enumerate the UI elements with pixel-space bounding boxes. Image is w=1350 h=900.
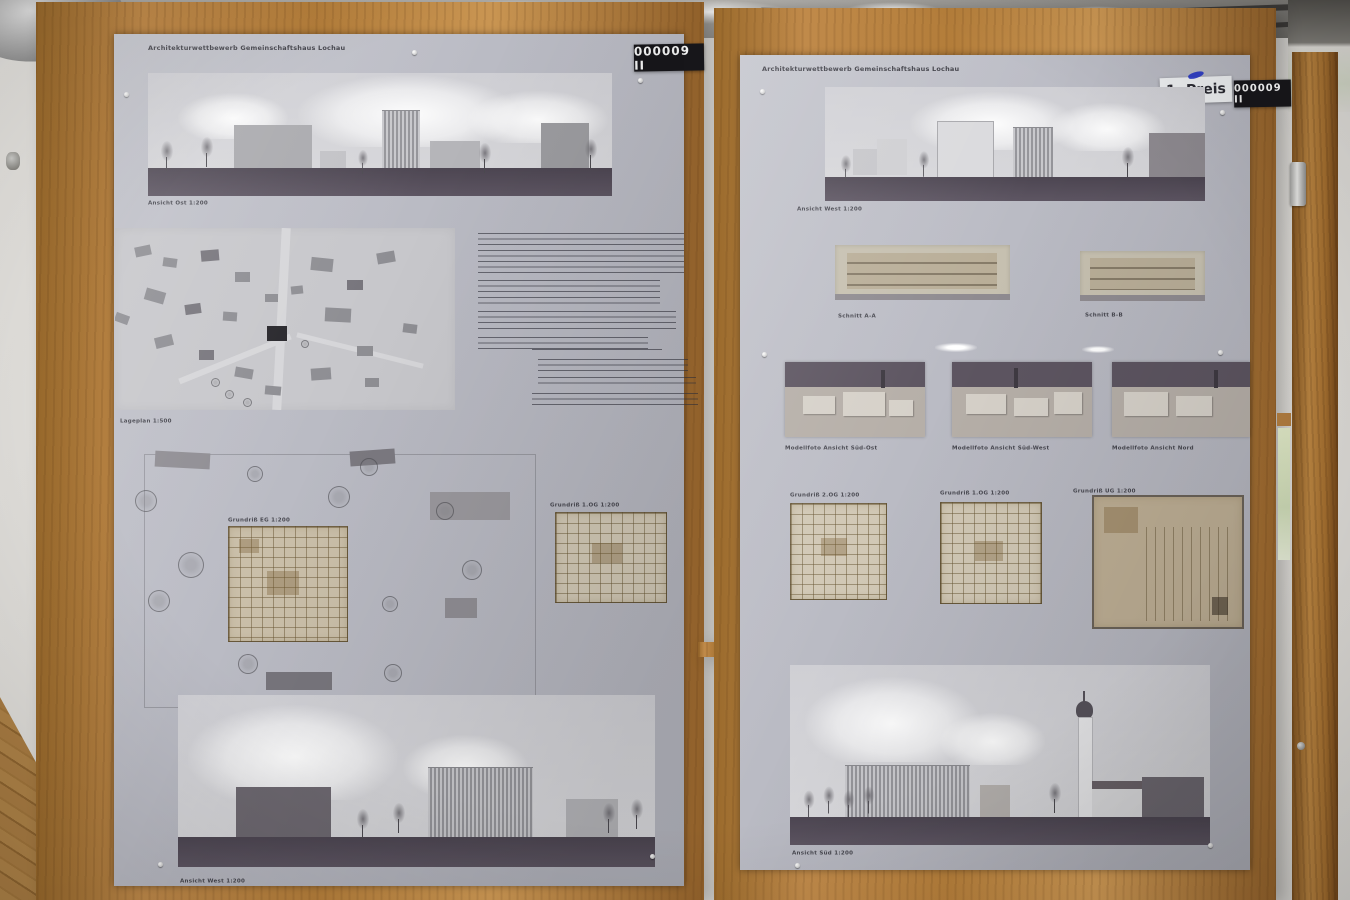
push-pin (762, 352, 767, 357)
site-building (357, 346, 373, 356)
section-drawing-a (835, 245, 1010, 300)
ground-band (825, 177, 1205, 201)
caption-section-a: Schnitt A-A (838, 313, 876, 319)
caption-section-b: Schnitt B-B (1085, 312, 1123, 318)
tree-icon (1121, 147, 1135, 177)
board-title: Architekturwettbewerb Gemeinschaftshaus … (148, 44, 345, 52)
right-competition-board: Architekturwettbewerb Gemeinschaftshaus … (740, 55, 1250, 870)
site-building (115, 312, 130, 325)
push-pin (760, 89, 765, 94)
tree-icon (602, 803, 616, 833)
building-silhouette-striped (428, 767, 533, 838)
model-building (1014, 398, 1048, 416)
model-building (889, 400, 913, 416)
tree-icon (178, 552, 204, 578)
model-photo-1 (785, 362, 925, 437)
window-sill (1277, 413, 1291, 426)
section-floors (1090, 258, 1195, 290)
floor-plan-2og (790, 503, 887, 600)
model-church-spire (881, 370, 885, 388)
tree-icon (148, 590, 170, 612)
site-building (223, 312, 238, 322)
site-building (184, 303, 201, 315)
site-building (291, 285, 304, 294)
tree-icon (328, 486, 350, 508)
caption-floor-plan-ug: Grundriß UG 1:200 (1073, 488, 1136, 494)
tree-icon (462, 560, 482, 580)
tree-icon (225, 390, 234, 399)
push-pin (650, 854, 655, 859)
cloud (940, 713, 1045, 765)
plan-core (267, 571, 299, 595)
tree-icon (584, 139, 598, 169)
model-building (966, 394, 1006, 414)
caption-floor-plan-2og: Grundriß 2.OG 1:200 (790, 492, 859, 498)
elevation-drawing-top (825, 87, 1205, 201)
site-building (265, 294, 278, 302)
church-tower (1078, 717, 1093, 819)
push-pin (1220, 110, 1225, 115)
tree-icon (382, 596, 398, 612)
model-building (1124, 392, 1168, 416)
tree-icon (630, 799, 644, 829)
floor-plan-ground (228, 526, 348, 642)
push-pin (638, 78, 643, 83)
tree-icon (211, 378, 220, 387)
white-scribble (935, 343, 977, 352)
floor-plan-upper (555, 512, 667, 603)
revision-note-text (532, 393, 698, 405)
model-photo-2 (952, 362, 1092, 437)
building-silhouette (236, 787, 331, 837)
building-silhouette (980, 785, 1010, 817)
building-silhouette (877, 139, 907, 175)
church-cross (1083, 691, 1085, 703)
entry-number-badge: 000009 II (1234, 80, 1291, 108)
section-floors (847, 253, 997, 289)
left-competition-board: Architekturwettbewerb Gemeinschaftshaus … (114, 34, 684, 886)
caption-top-elevation: Ansicht Ost 1:200 (148, 200, 208, 206)
site-building (403, 323, 418, 334)
context-slab (266, 672, 332, 690)
section-base (835, 294, 1010, 300)
entry-number-badge: 000009 II (634, 43, 704, 71)
site-building (235, 272, 250, 282)
building-silhouette (937, 121, 994, 179)
site-building (144, 287, 167, 304)
revision-note-text (538, 359, 688, 373)
section-base (1080, 295, 1205, 301)
caption-bottom-elevation: Ansicht West 1:200 (180, 878, 245, 884)
ground-band (790, 817, 1210, 845)
site-building (365, 378, 379, 387)
caption-floor-plan-ground: Grundriß EG 1:200 (228, 517, 290, 523)
site-plan-drawing (115, 228, 455, 410)
revision-note-heading (532, 349, 662, 351)
tree-icon (200, 137, 214, 167)
tree-icon (436, 502, 454, 520)
right-display-panel-frame: Architekturwettbewerb Gemeinschaftshaus … (714, 8, 1276, 900)
ground-band (148, 168, 612, 196)
elevation-drawing-bottom (178, 695, 655, 867)
site-building (134, 244, 152, 257)
building-silhouette (234, 125, 312, 168)
cloud (1050, 103, 1165, 151)
floor-plan-1og (940, 502, 1042, 604)
caption-site-plan: Lageplan 1:500 (120, 418, 172, 424)
project-description-text (478, 311, 676, 333)
project-description-text (478, 280, 660, 306)
tree-icon (360, 458, 378, 476)
push-pin (412, 50, 417, 55)
model-photo-3 (1112, 362, 1250, 437)
site-building (311, 367, 332, 380)
floor-plan-ug (1092, 495, 1244, 629)
push-pin (124, 92, 129, 97)
building-silhouette-striped (1013, 127, 1053, 178)
revision-note-text (538, 377, 696, 387)
site-building (265, 385, 282, 395)
tree-icon (840, 155, 852, 181)
section-drawing-b (1080, 251, 1205, 301)
plan-core (975, 541, 1003, 561)
tree-icon (160, 141, 174, 171)
hinge (1290, 162, 1306, 206)
elevation-drawing-top (148, 73, 612, 196)
tree-icon (843, 791, 856, 818)
site-building (154, 334, 174, 349)
exhibition-room-photo: Architekturwettbewerb Gemeinschaftshaus … (0, 0, 1350, 900)
plan-core (239, 539, 259, 553)
site-building (201, 249, 220, 262)
tree-icon (247, 466, 263, 482)
model-building (803, 396, 835, 414)
model-church-spire (1014, 368, 1018, 388)
site-building (310, 257, 333, 272)
building-silhouette (1149, 133, 1205, 178)
building-silhouette (853, 149, 879, 175)
push-pin (1208, 843, 1213, 848)
model-building (1176, 396, 1212, 416)
white-scribble (1082, 346, 1114, 353)
model-church-spire (1214, 370, 1218, 388)
plan-core (1212, 597, 1228, 615)
cloud (188, 705, 398, 800)
site-building (376, 251, 396, 265)
ground-band (178, 837, 655, 867)
building-silhouette-striped (382, 110, 420, 169)
site-building (199, 350, 214, 360)
tree-icon (803, 791, 816, 818)
push-pin (158, 862, 163, 867)
building-silhouette (320, 151, 346, 168)
tree-icon (823, 787, 836, 814)
tree-icon (1048, 783, 1062, 813)
road (272, 228, 291, 410)
tree-icon (478, 143, 492, 173)
board-title: Architekturwettbewerb Gemeinschaftshaus … (762, 65, 959, 73)
plan-core (1104, 507, 1138, 533)
site-building (234, 367, 253, 380)
plan-core (821, 538, 847, 556)
plan-core (592, 543, 622, 563)
tree-icon (384, 664, 402, 682)
model-building (843, 392, 885, 416)
caption-model-photo-3: Modellfoto Ansicht Nord (1112, 445, 1194, 451)
caption-top-elevation: Ansicht West 1:200 (797, 206, 862, 212)
tree-icon (918, 151, 930, 177)
wall-bracket (6, 152, 20, 170)
project-description-text (478, 233, 684, 275)
tree-icon (356, 809, 370, 839)
push-pin (795, 863, 800, 868)
site-building-highlight (267, 326, 287, 341)
caption-model-photo-2: Modellfoto Ansicht Süd-West (952, 445, 1049, 451)
context-slab (155, 451, 211, 470)
caption-model-photo-1: Modellfoto Ansicht Süd-Ost (785, 445, 877, 451)
caption-floor-plan-upper: Grundriß 1.OG 1:200 (550, 502, 619, 508)
push-pin (1218, 350, 1223, 355)
left-display-panel-frame: Architekturwettbewerb Gemeinschaftshaus … (36, 2, 704, 900)
tree-icon (392, 803, 406, 833)
caption-floor-plan-1og: Grundriß 1.OG 1:200 (940, 490, 1009, 496)
window-reflection (1278, 428, 1290, 560)
screw (1297, 742, 1305, 750)
elevation-drawing-bottom (790, 665, 1210, 845)
project-description-text (478, 337, 648, 349)
building-silhouette (1142, 777, 1204, 817)
tree-icon (135, 490, 157, 512)
site-building (162, 257, 177, 268)
tree-icon (301, 340, 309, 348)
building-silhouette (541, 123, 589, 168)
context-slab (445, 598, 477, 618)
caption-bottom-elevation: Ansicht Süd 1:200 (792, 850, 853, 856)
tree-icon (863, 787, 876, 814)
tree-icon (357, 150, 368, 174)
site-building (325, 307, 352, 322)
tree-icon (243, 398, 252, 407)
model-building (1054, 392, 1082, 414)
site-building (347, 280, 363, 290)
tree-icon (238, 654, 258, 674)
building-silhouette (430, 141, 480, 168)
